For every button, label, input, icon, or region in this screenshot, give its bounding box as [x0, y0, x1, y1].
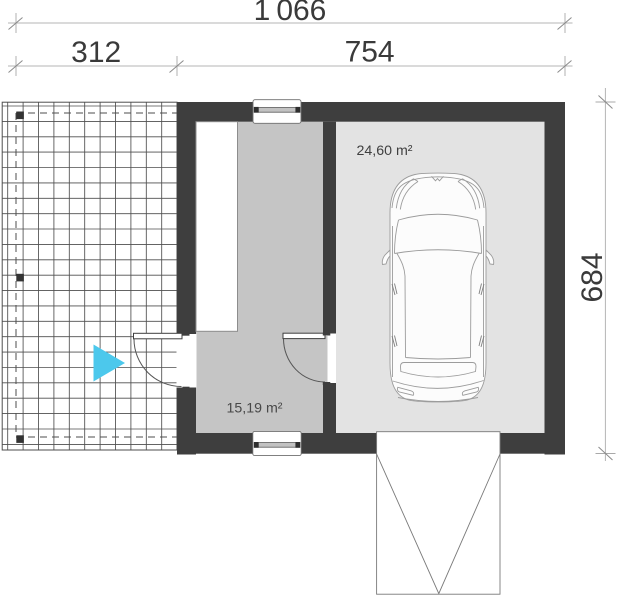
svg-text:754: 754: [345, 36, 395, 69]
svg-text:312: 312: [71, 36, 121, 69]
svg-text:1 066: 1 066: [254, 0, 327, 27]
svg-text:24,60 m²: 24,60 m²: [357, 143, 413, 159]
svg-text:684: 684: [576, 252, 609, 302]
svg-text:15,19 m²: 15,19 m²: [227, 400, 283, 416]
